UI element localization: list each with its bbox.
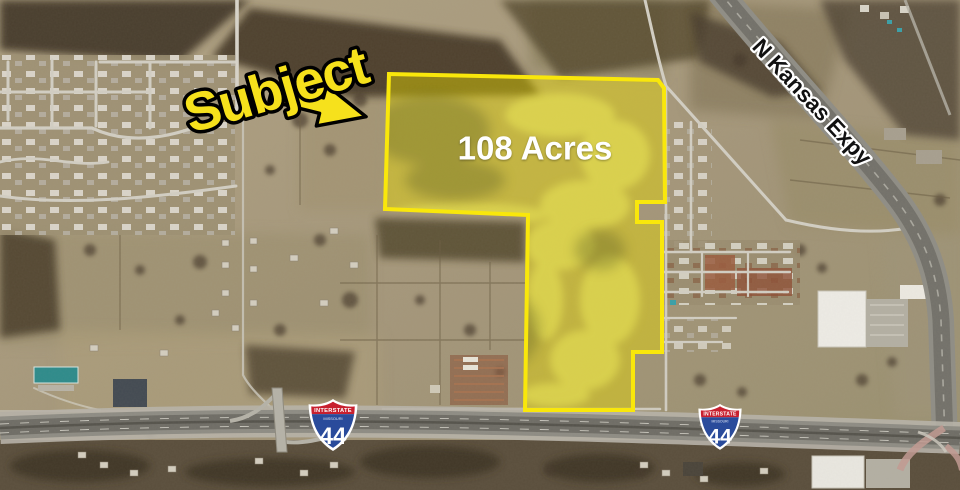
acreage-label: 108 Acres <box>458 130 613 167</box>
aerial-map: Subject 108 Acres N Kansas Expy INTERSTA… <box>0 0 960 490</box>
shield-state: MISSOURI <box>712 419 729 423</box>
shield-number: 44 <box>708 425 732 448</box>
shield-header: INTERSTATE <box>703 411 737 417</box>
shield-state: MISSOURI <box>323 416 342 421</box>
terrain-basemap <box>0 0 960 490</box>
shield-number: 44 <box>320 423 347 450</box>
shield-header: INTERSTATE <box>314 408 352 414</box>
